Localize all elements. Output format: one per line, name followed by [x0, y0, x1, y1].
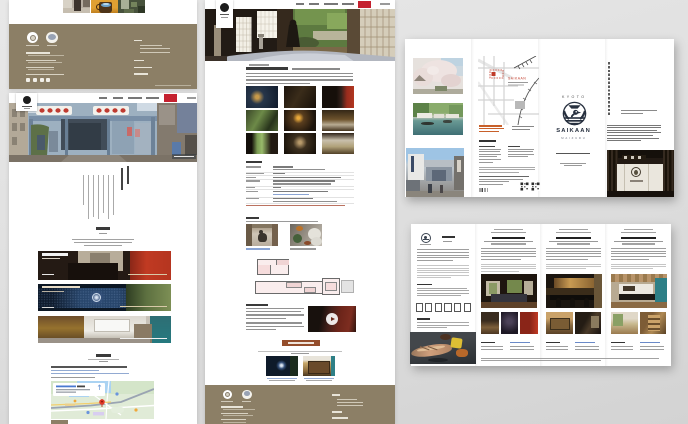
- svg-text:SAIKAAN: SAIKAAN: [508, 76, 526, 80]
